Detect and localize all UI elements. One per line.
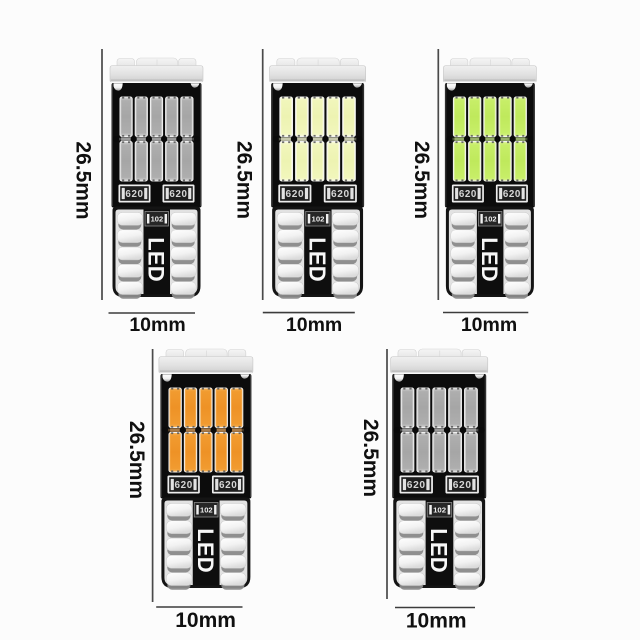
- svg-text:LED: LED: [144, 237, 169, 282]
- svg-text:26.5mm: 26.5mm: [71, 141, 94, 219]
- svg-text:620: 620: [125, 189, 143, 200]
- svg-text:620: 620: [285, 189, 304, 200]
- svg-text:LED: LED: [193, 528, 218, 573]
- svg-text:26.5mm: 26.5mm: [410, 141, 433, 219]
- svg-text:620: 620: [219, 480, 237, 491]
- svg-text:102: 102: [151, 215, 164, 224]
- svg-text:10mm: 10mm: [286, 314, 342, 336]
- svg-text:620: 620: [331, 189, 350, 200]
- svg-text:620: 620: [174, 480, 192, 491]
- svg-text:620: 620: [169, 189, 187, 200]
- svg-text:LED: LED: [304, 237, 329, 282]
- svg-text:10mm: 10mm: [461, 314, 517, 336]
- svg-text:620: 620: [407, 480, 426, 491]
- svg-text:102: 102: [433, 506, 446, 515]
- svg-text:10mm: 10mm: [129, 314, 185, 336]
- svg-text:620: 620: [453, 480, 472, 491]
- svg-text:10mm: 10mm: [175, 609, 236, 632]
- svg-text:102: 102: [200, 506, 213, 515]
- svg-text:LED: LED: [477, 237, 502, 282]
- svg-text:26.5mm: 26.5mm: [125, 421, 148, 499]
- svg-text:26.5mm: 26.5mm: [233, 141, 256, 219]
- svg-text:102: 102: [484, 215, 497, 224]
- svg-text:102: 102: [312, 215, 325, 224]
- svg-text:10mm: 10mm: [406, 610, 467, 633]
- svg-text:620: 620: [503, 189, 521, 200]
- svg-text:26.5mm: 26.5mm: [359, 419, 382, 497]
- svg-text:620: 620: [459, 189, 477, 200]
- svg-text:LED: LED: [426, 528, 452, 573]
